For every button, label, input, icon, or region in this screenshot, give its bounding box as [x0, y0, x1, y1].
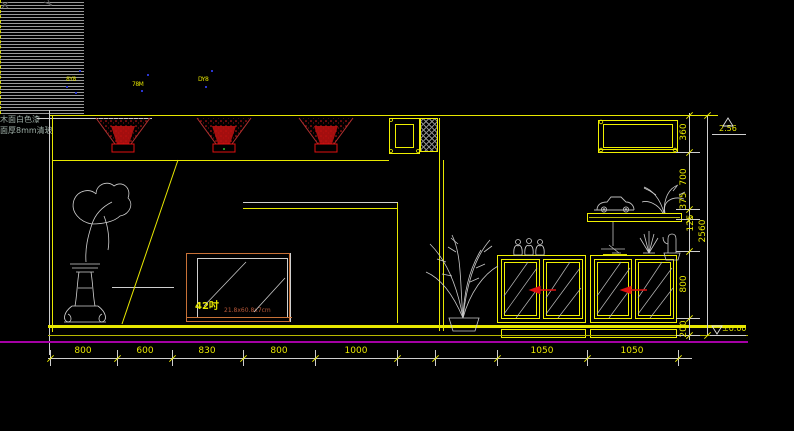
decor-figurines-icon	[514, 239, 544, 256]
hanging-model-icon	[601, 222, 625, 253]
fixture-tag-3: DY8	[198, 75, 208, 85]
dim-bottom-6: 1050	[524, 346, 560, 356]
ceiling-level-value: 2.56	[719, 124, 737, 134]
wall-note-underline	[112, 287, 174, 288]
tv-size-label: 42吋	[195, 302, 219, 312]
fixture-tag-1: 8Y8	[66, 75, 76, 85]
floor-level-value: ±0.00	[722, 324, 747, 334]
backdrop-shelf-bottom	[243, 208, 398, 209]
dim-right-4: 125	[686, 205, 696, 241]
ceiling-level-underline	[712, 134, 746, 135]
hanging-model-base-line	[603, 254, 627, 255]
hatch-column-section	[420, 118, 438, 152]
dim-right-1: 360	[679, 114, 689, 150]
floor-level-underline	[710, 335, 746, 336]
tag-blue-speck	[141, 90, 143, 92]
model-car-icon	[594, 197, 634, 212]
dim-extension-top	[37, 118, 152, 119]
skirting-line	[48, 335, 748, 336]
tag-blue-speck	[211, 70, 213, 72]
dim-bottom-3: 830	[189, 346, 225, 356]
bottom-dim-line	[48, 358, 692, 359]
dim-bottom-5: 1000	[338, 346, 374, 356]
tv-stand-line	[186, 317, 292, 318]
dim-bottom-2: 600	[127, 346, 163, 356]
wall-corner-line	[439, 118, 440, 331]
spiky-plant-icon	[640, 231, 658, 253]
louver-panel	[0, 0, 84, 114]
tag-blue-speck	[75, 92, 77, 94]
glass-cabinet-1-kick	[501, 329, 586, 338]
level-marker-icon	[712, 118, 733, 334]
wall-cabinet-inner	[603, 124, 673, 148]
glass-cabinet-1-door-right-inner	[546, 262, 580, 316]
datum-line-magenta	[0, 341, 748, 343]
dim-extension-left	[49, 110, 50, 355]
glass-cabinet-2-kick	[590, 329, 677, 338]
fixture-tag-2: 78M	[132, 80, 143, 90]
ceiling-line	[50, 115, 718, 116]
dim-bottom-1: 800	[65, 346, 101, 356]
wall-cabinet-bottom-line	[598, 149, 678, 150]
tag-blue-speck	[66, 86, 68, 88]
palm-plant-icon	[426, 235, 498, 331]
tag-blue-speck	[205, 86, 207, 88]
ceiling-frame-panel-inner	[395, 124, 414, 148]
tag-blue-speck	[79, 70, 81, 72]
wall-corner-line-2	[443, 160, 444, 331]
glass-cabinet-1-door-left-inner	[504, 262, 537, 316]
tv-cabinet-right-edge	[290, 253, 291, 322]
backdrop-shelf-top	[243, 202, 398, 203]
dim-bottom-4: 800	[261, 346, 297, 356]
soffit-line	[52, 160, 389, 161]
pedestal-plant-icon	[64, 183, 131, 322]
louver-right-edge	[397, 203, 398, 323]
tv-spec-label: 21.8x60.8x7cm	[224, 306, 271, 316]
leader-line	[122, 160, 178, 324]
tag-blue-speck	[147, 74, 149, 76]
wall-left-edge	[52, 115, 53, 332]
glass-cabinet-2-door-left-inner	[597, 262, 629, 316]
glass-cabinet-2-door-right-inner	[638, 262, 671, 316]
dim-bottom-7: 1050	[614, 346, 650, 356]
cad-drawing-canvas[interactable]: 42吋 21.8x60.8x7cm 8Y8 78M DY8 木面白色漆 面厚8m…	[0, 0, 794, 431]
floor-line	[48, 325, 746, 328]
dim-right-5: 800	[679, 266, 689, 302]
dim-right-6: 200	[679, 311, 689, 347]
display-shelf-midline	[589, 217, 680, 218]
dim-right-total: 2560	[698, 213, 708, 249]
